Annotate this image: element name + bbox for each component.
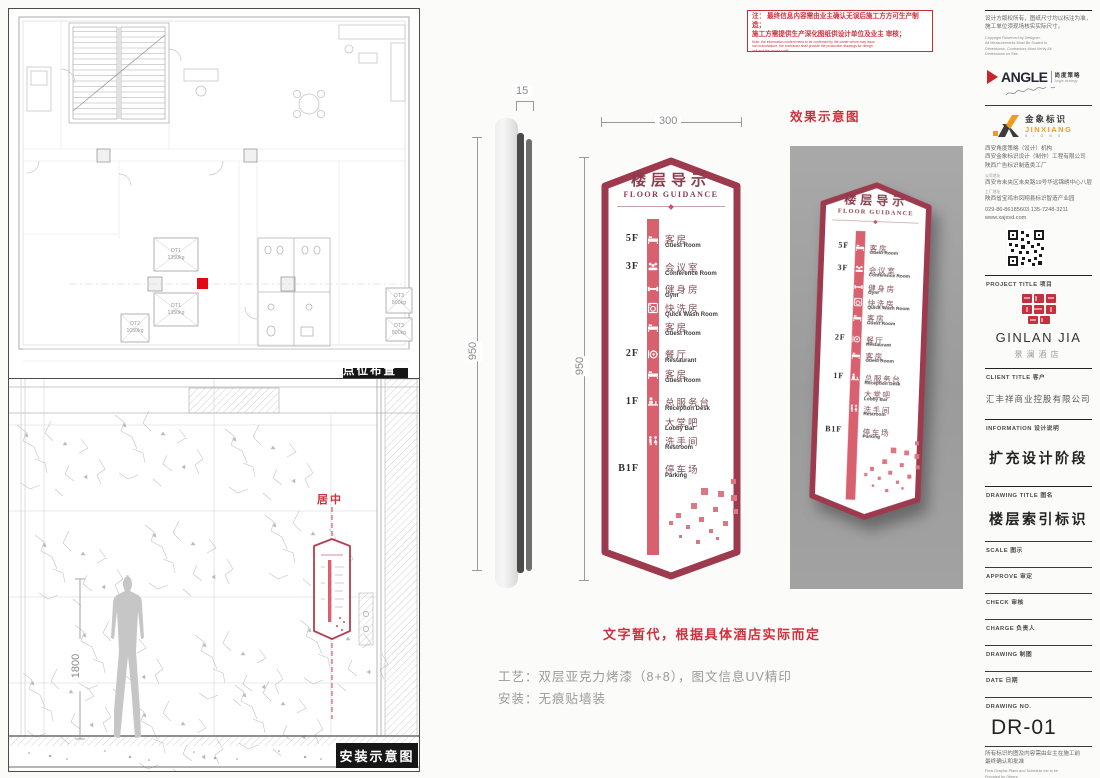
restrooms [258, 238, 330, 346]
qr-code [1007, 229, 1045, 267]
floor-label: 5F [818, 241, 849, 251]
floor-label: 2F [815, 333, 846, 343]
render-stage: 楼层导示FLOOR GUIDANCE5F客房Guest Room3F会议室Con… [790, 146, 963, 589]
design-phase: 扩充设计阶段 [985, 432, 1092, 486]
center-note: 居中 [317, 492, 343, 506]
client-title-label: CLIENT TITLE 客户 [985, 369, 1092, 381]
room-name-en: Restaurant [866, 342, 891, 348]
render-label: 效果示意图 [790, 106, 860, 125]
deco-square [679, 535, 682, 538]
sign-row: 洗手间Restroom [601, 435, 741, 455]
restaurant-icon [851, 333, 861, 343]
jinxiang-signs-logo: 金象标识 JINXIANG S I G N S [991, 113, 1092, 139]
deco-square [915, 441, 919, 445]
svg-text:1800: 1800 [70, 654, 82, 678]
deco-square [669, 521, 673, 525]
room-name-en: Restroom [863, 412, 886, 418]
field-approve: APPROVE 审定 [985, 567, 1092, 593]
mounting-note: 安装：无痕贴墙装 [498, 688, 606, 707]
copyright-cn: 设计方版权所有，图纸尺寸均以标注为准， [985, 15, 1092, 23]
sign-title-zh: 楼层导示 [601, 169, 741, 190]
deco-square [731, 495, 737, 501]
sign-row: 2F餐厅Restaurant [601, 348, 741, 368]
deco-square [686, 525, 690, 529]
ginlan-seal-icon [1022, 294, 1056, 324]
deco-square [691, 503, 697, 509]
deco-square [731, 479, 736, 484]
note-line-2: 施工方需提供生产深化图纸供设计单位及业主 审核； [752, 31, 928, 40]
deco-square [896, 481, 899, 484]
install-view-label: 安装示意图 [336, 743, 418, 768]
floor-label: 1F [601, 396, 639, 407]
note-line-1: 注： 最终信息内容需由业主确认无误后施工方方可生产制造； [752, 13, 928, 31]
room-name-en: Lobby Bar [665, 426, 695, 432]
deco-square [904, 450, 909, 455]
room-name-en: Gym [665, 293, 678, 299]
svg-text:DT3: DT3 [394, 323, 404, 329]
deco-square [878, 477, 881, 480]
deco-square [916, 465, 920, 469]
floor-label: 1F [813, 371, 844, 381]
wash-icon [647, 301, 659, 313]
bed-icon [851, 349, 861, 359]
sign-elevation: 楼层导示FLOOR GUIDANCE5F客房Guest Room3F会议室Con… [601, 157, 741, 580]
website: www.xajxsd.com [985, 214, 1092, 222]
sign-row: 快洗房Quick Wash Room [601, 302, 741, 322]
deco-square [882, 459, 887, 464]
footer-cn: 所有标识的图及内容需由业主在施工前 [985, 750, 1092, 758]
project-name-cn: 景澜酒店 [985, 349, 1092, 360]
gym-icon [647, 282, 659, 294]
sign-row: 3F会议室Conference Room [601, 261, 741, 281]
deco-square [872, 484, 874, 486]
floor-label: 3F [818, 263, 849, 273]
deco-square [885, 489, 888, 492]
floor-label: 3F [601, 261, 639, 272]
deco-square [716, 537, 719, 540]
sign-title-en: FLOOR GUIDANCE [601, 190, 741, 199]
room-name-en: Quick Wash Room [867, 306, 909, 312]
svg-text:1350kg: 1350kg [167, 255, 184, 261]
deco-square [676, 513, 681, 518]
sign-row: 5F客房Guest Room [601, 233, 741, 253]
bed-icon [647, 320, 659, 332]
deco-square [718, 491, 724, 497]
bed-icon [647, 367, 659, 379]
field-drawing: DRAWING 制图 [985, 645, 1092, 671]
room-name-en: Gym [868, 291, 879, 296]
information-label: INFORMATION 设计说明 [985, 420, 1092, 432]
sign-row: 健身房Gym [601, 283, 741, 303]
handwritten-tagline [1003, 87, 1063, 99]
restroom-icon [647, 434, 659, 446]
sign-render: 楼层导示FLOOR GUIDANCE5F客房Guest Room3F会议室Con… [808, 180, 933, 522]
reception-icon [850, 372, 860, 382]
sign-row: 1F总服务台Reception Desk [601, 396, 741, 416]
side-profile-wall [495, 118, 518, 588]
room-name-en: Lobby Bar [864, 397, 888, 403]
sign-row: 客房Guest Room [601, 321, 741, 341]
reception-icon [647, 395, 659, 407]
sign-row: 客房Guest Room [601, 368, 741, 388]
process-note: 工艺：双层亚克力烤漆（8+8），图文信息UV精印 [498, 666, 792, 685]
room-name-en: Guest Room [865, 358, 894, 364]
phone-numbers: 029-86-86185603 135-7248-3211 [985, 206, 1092, 214]
meeting-icon [647, 260, 659, 272]
deco-square [733, 509, 738, 514]
angle-triangle-icon [987, 70, 998, 84]
room-name-en: Reception Desk [864, 381, 900, 387]
floor-label: 5F [601, 233, 639, 244]
installation-panel: 1800 居中 [8, 378, 420, 772]
field-date: DATE 日期 [985, 671, 1092, 697]
drawing-title-label: DRAWING TITLE 图名 [985, 487, 1092, 499]
room-name-en: Conference Room [869, 273, 911, 279]
side-profile-panel-outer [517, 133, 524, 573]
sign-row: 大堂吧Lobby Bar [601, 416, 741, 436]
room-name-en: Restroom [665, 445, 693, 451]
field-charge: CHARGE 负责人 [985, 619, 1092, 645]
sign-divider [617, 206, 725, 207]
deco-square [864, 473, 867, 476]
svg-text:800kg: 800kg [392, 330, 406, 336]
room-name-en: Quick Wash Room [665, 312, 718, 318]
gym-icon [853, 281, 863, 291]
room-name-en: Guest Room [867, 321, 896, 327]
room-name-en: Guest Room [665, 243, 701, 249]
meeting-icon [854, 264, 864, 274]
sign-row: B1F停车场Parking [601, 463, 741, 483]
floor-plan-panel: DT11350kg DT11350kg DT21050kg DT3800kg D… [8, 8, 420, 380]
installation-drawing: 1800 居中 [9, 379, 419, 771]
bed-icon [852, 312, 862, 322]
room-name-en: Guest Room [869, 251, 898, 257]
svg-text:DT3: DT3 [394, 293, 404, 299]
room-name-en: Restaurant [665, 358, 696, 364]
field-scale: SCALE 图示 [985, 541, 1092, 567]
deco-square [907, 475, 911, 479]
deco-square [713, 507, 718, 512]
restaurant-icon [647, 347, 659, 359]
jinxiang-x-icon [991, 113, 1021, 139]
floor-label: B1F [601, 463, 639, 474]
person-silhouette [111, 575, 144, 738]
deco-square [870, 467, 874, 471]
drawing-title: 楼层索引标识 [985, 499, 1092, 541]
installed-sign [314, 539, 350, 639]
svg-text:800kg: 800kg [392, 300, 406, 306]
svg-text:DT1: DT1 [171, 303, 181, 309]
deco-square [891, 448, 897, 454]
room-name-en: Parking [862, 434, 880, 439]
room-name-en: Conference Room [665, 271, 717, 277]
angle-strategy-logo: ANGLE 尚度策略 Angle strategy [987, 69, 1092, 85]
deco-square [696, 540, 700, 544]
room-name-en: Reception Desk [665, 406, 710, 412]
svg-text:DT1: DT1 [171, 248, 181, 254]
project-brand: GINLAN JIA 景澜酒店 [985, 288, 1092, 368]
field-check: CHECK 审核 [985, 593, 1092, 619]
floor-plan-drawing: DT11350kg DT11350kg DT21050kg DT3800kg D… [9, 9, 419, 379]
stair-core [69, 23, 169, 123]
title-block: 设计方版权所有，图纸尺寸均以标注为准， 施工单位须现场核实实际尺寸。 Copyr… [985, 0, 1092, 778]
sign-location-marker [197, 278, 208, 289]
room-name-en: Guest Room [665, 378, 701, 384]
side-profile-panel-inner [526, 139, 532, 571]
note-en-3: unit and the owner audit; [752, 49, 928, 53]
placeholder-text-note: 文字暂代，根据具体酒店实际而定 [603, 624, 821, 643]
org-line: 西安角度策略（设计）机构 [985, 145, 1092, 153]
client-name: 汇丰祥商业控股有限公司 [985, 381, 1092, 419]
floor-label: B1F [811, 424, 842, 434]
project-title-label: PROJECT TITLE 项目 [985, 276, 1092, 288]
room-name-en: Parking [665, 473, 687, 479]
floor-label: 2F [601, 348, 639, 359]
drawing-no-label: DRAWING NO. [985, 698, 1092, 710]
bed-icon [647, 232, 659, 244]
wash-icon [853, 296, 863, 306]
deco-square [900, 463, 904, 467]
svg-text:1050kg: 1050kg [126, 328, 143, 334]
svg-text:DT2: DT2 [130, 321, 140, 327]
deco-square [888, 471, 892, 475]
deco-square [699, 517, 704, 522]
project-name: GINLAN JIA [985, 330, 1092, 345]
deco-square [914, 454, 919, 459]
deco-square [723, 521, 728, 526]
svg-text:1350kg: 1350kg [167, 310, 184, 316]
deco-square [709, 529, 713, 533]
room-name-en: Guest Room [665, 331, 701, 337]
drawing-number: DR-01 [985, 710, 1092, 746]
deco-square [901, 487, 903, 489]
bed-icon [855, 241, 865, 251]
drawing-sheet: DT11350kg DT11350kg DT21050kg DT3800kg D… [0, 0, 1100, 778]
deco-square [701, 488, 708, 495]
restroom-icon [849, 403, 859, 413]
production-note-box: 注： 最终信息内容需由业主确认无误后施工方方可生产制造； 施工方需提供生产深化图… [747, 10, 933, 52]
